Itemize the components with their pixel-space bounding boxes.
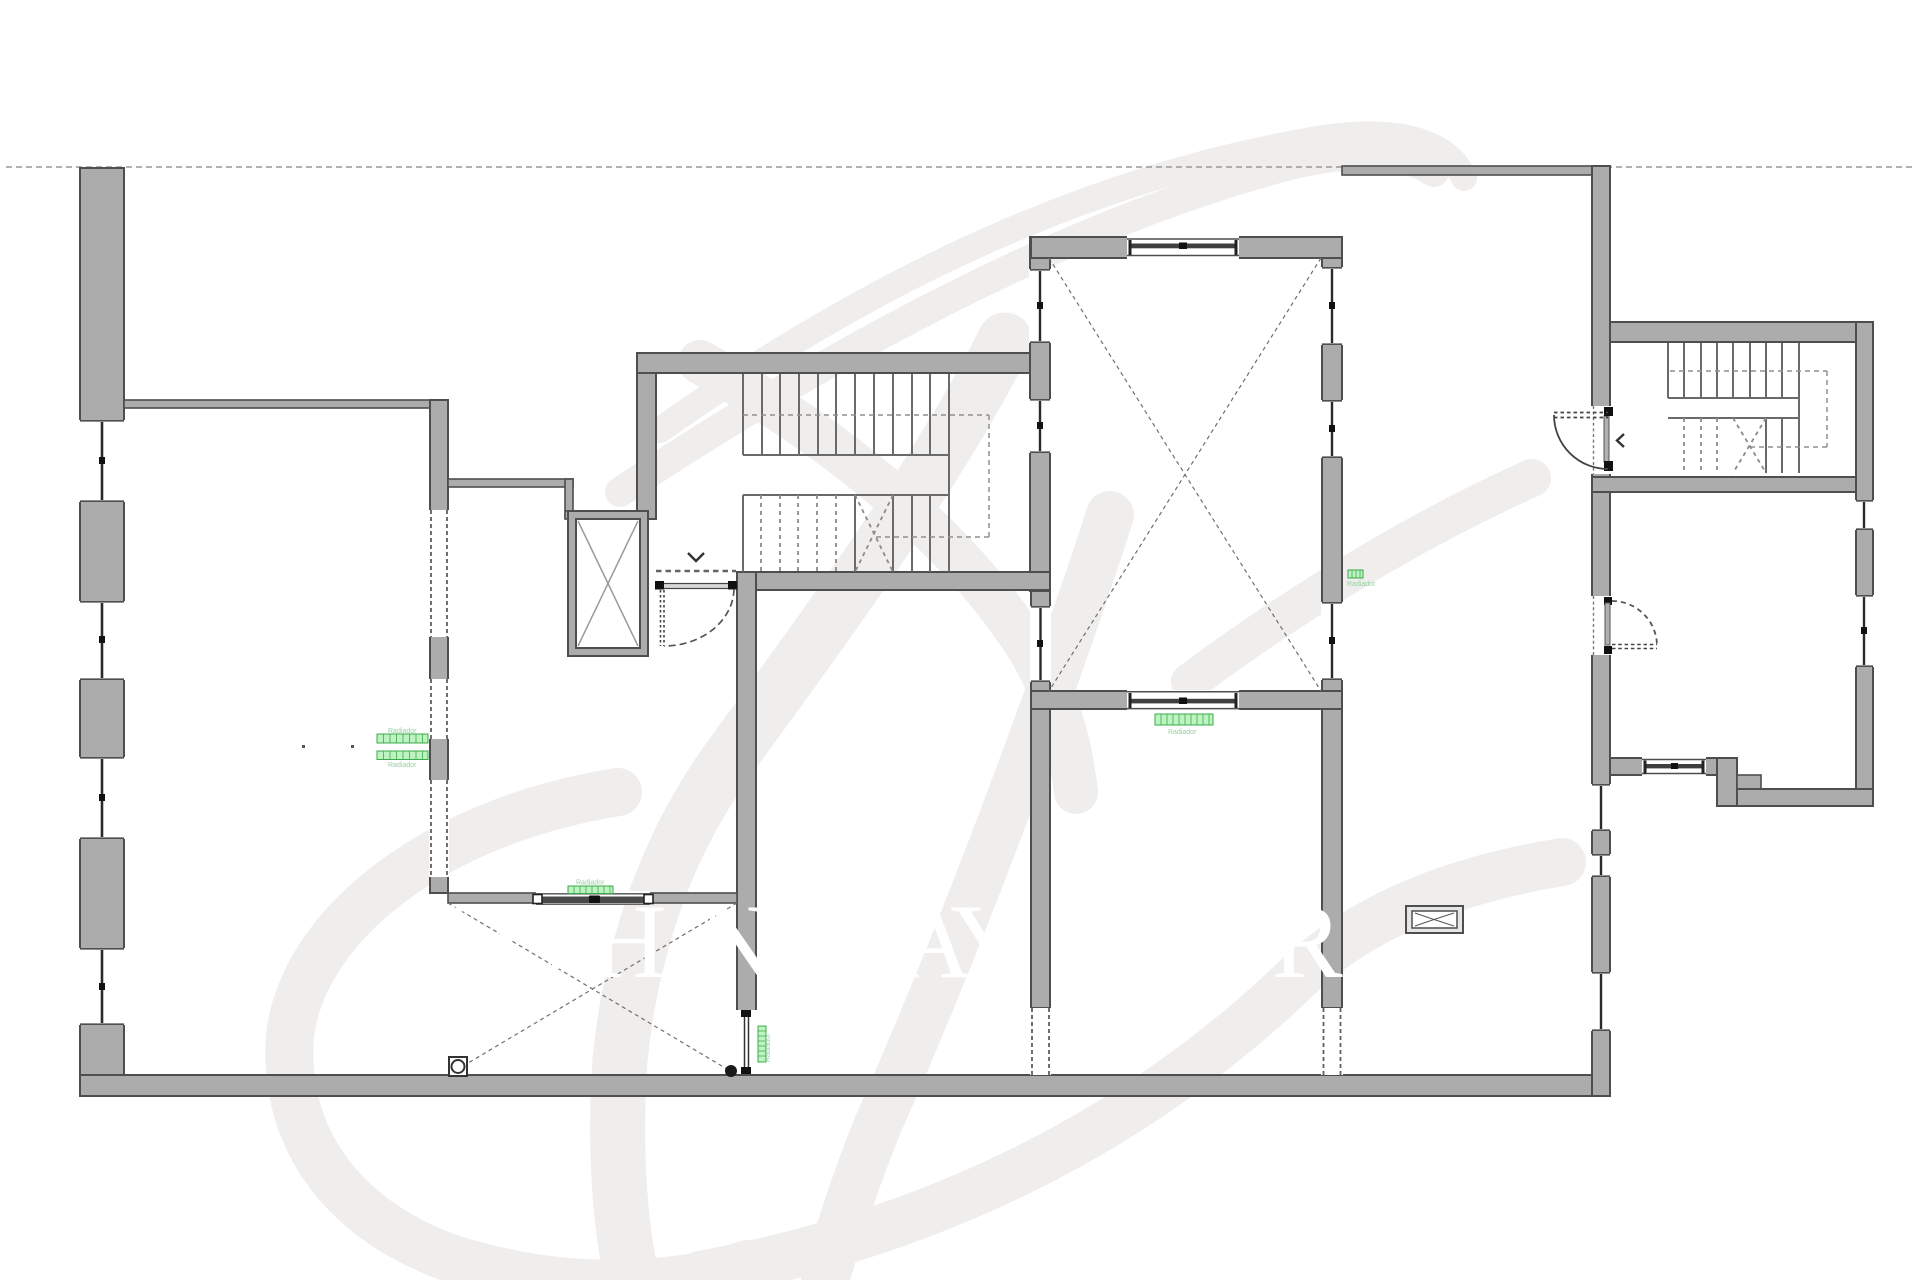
svg-text:Radiador: Radiador xyxy=(1168,729,1197,736)
svg-text:Radiador: Radiador xyxy=(765,1033,772,1062)
svg-text:Radiador: Radiador xyxy=(576,880,605,887)
svg-text:Radiador: Radiador xyxy=(388,728,417,735)
svg-text:Radiador: Radiador xyxy=(1347,581,1376,588)
svg-text:Radiador: Radiador xyxy=(388,762,417,769)
